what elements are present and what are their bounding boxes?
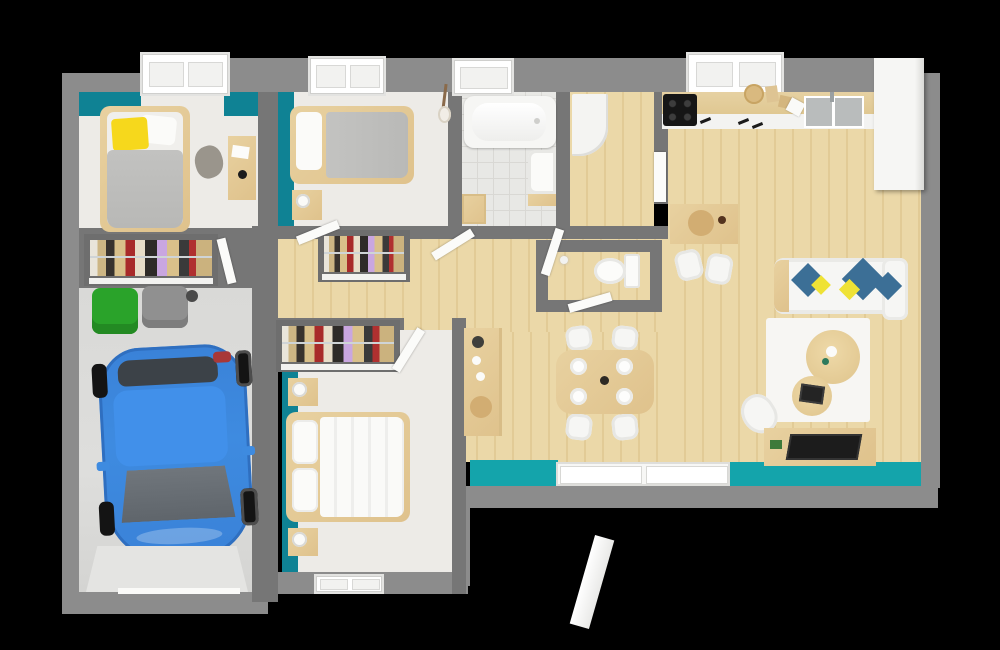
living-desk (764, 428, 876, 466)
window-pane (460, 67, 508, 89)
car-wheel (99, 501, 116, 536)
bathtub (464, 96, 556, 148)
window-pane (316, 65, 346, 88)
car-wheel (91, 364, 108, 399)
toilet-bowl (594, 258, 626, 284)
window-pane (320, 579, 348, 590)
bed1-yellow-pillow (111, 117, 149, 151)
dining-table (556, 350, 654, 414)
window-master (314, 574, 384, 594)
wardrobe-shelf (281, 364, 395, 370)
car-mirror (96, 461, 109, 471)
window-bathroom (452, 58, 514, 96)
master-pillow (292, 468, 318, 512)
wall-b1-b2 (258, 92, 278, 228)
sideboard-board (470, 396, 492, 418)
plate (570, 358, 587, 375)
roof-stub (508, 58, 686, 74)
plate (616, 388, 633, 405)
hanging-clothes (324, 236, 404, 272)
bed2-lamp (296, 194, 310, 208)
counter-box (765, 85, 779, 103)
window-pane (696, 62, 734, 87)
cutting-board (744, 84, 764, 104)
car-rear-window (117, 356, 218, 387)
cooktop (663, 94, 697, 126)
bedroom1-wardrobe (84, 234, 218, 286)
master-lamp (292, 532, 307, 547)
outer-wall-left (62, 73, 79, 602)
garage-door-threshold (118, 588, 240, 594)
garage-door-ramp (86, 546, 248, 592)
table-centerpiece (600, 376, 609, 385)
bathroom-sink-shelf (528, 194, 556, 206)
master-duvet (320, 417, 404, 517)
white-plank (570, 535, 615, 629)
car (97, 342, 256, 561)
black-tray (799, 383, 825, 404)
coffee-table-small (792, 376, 832, 416)
wall-hall-left (252, 226, 278, 602)
bathroom-sink (528, 150, 556, 194)
sink-divider (832, 98, 835, 126)
window-bedroom2 (308, 56, 386, 96)
floor-plan-render (0, 0, 1000, 650)
toilet-tank (624, 254, 640, 288)
car-wheel (240, 488, 259, 526)
sideboard (464, 328, 502, 436)
dining-chair (565, 413, 594, 442)
car-mirror (242, 446, 255, 456)
plate (616, 358, 633, 375)
outer-wall-bottom-living (468, 486, 938, 508)
tall-cabinet (874, 58, 924, 190)
sliding-door-panel (560, 466, 642, 484)
car-taillight (213, 351, 232, 363)
car-wheel (235, 350, 253, 387)
terrace-strip-left (470, 460, 558, 486)
desk-pad (770, 440, 782, 449)
outer-wall-bottom-garage (62, 592, 268, 614)
window-pane (350, 65, 380, 88)
window-pane (149, 62, 184, 87)
wall-bath-entry (556, 92, 570, 239)
table-board (688, 210, 714, 236)
bed2-pillow (296, 112, 322, 170)
sliding-door-panel (646, 466, 728, 484)
hallway-wardrobe (318, 230, 410, 282)
wc-ceiling-light (560, 256, 568, 264)
breakfast-table (670, 204, 738, 244)
bed2-duvet (326, 112, 408, 178)
coffee-cup (826, 346, 837, 357)
roof-stub (380, 58, 452, 74)
dining-chair (611, 413, 640, 442)
guitar-body (438, 106, 451, 123)
sliding-door (556, 462, 730, 486)
coffee-decor (822, 358, 829, 365)
kitchen-sink (804, 96, 864, 128)
desk-paper (231, 145, 250, 159)
plate (570, 388, 587, 405)
table-item (718, 216, 726, 224)
window-pane (739, 62, 777, 87)
green-bin (92, 288, 138, 334)
sideboard-bottle (476, 372, 485, 381)
window-pane (188, 62, 223, 87)
bin-handle (186, 290, 198, 302)
wardrobe-shelf (89, 278, 212, 284)
hanging-clothes (282, 326, 394, 362)
sink-faucet (830, 92, 834, 102)
laptop (786, 434, 863, 460)
sideboard-plant (472, 336, 484, 348)
bathroom-stool (462, 194, 486, 224)
window-pane (352, 579, 380, 590)
dining-chair (611, 325, 639, 352)
sideboard-bottle (472, 356, 481, 365)
master-pillow (292, 420, 318, 464)
bed1-duvet (107, 150, 183, 228)
sofa-arm-wood (774, 260, 789, 312)
car-windshield (119, 465, 236, 523)
window-bedroom1 (140, 52, 230, 96)
wardrobe-shelf (322, 274, 407, 280)
gray-bin (142, 286, 188, 328)
door-kitchen (654, 152, 666, 202)
master-wardrobe (276, 320, 400, 372)
roof-stub (778, 58, 874, 74)
hanging-clothes (90, 240, 212, 276)
roof-stub (222, 58, 310, 74)
bathtub-drain (534, 118, 540, 124)
desk-lamp (238, 170, 247, 179)
master-lamp (292, 382, 307, 397)
car-roof (113, 385, 229, 467)
